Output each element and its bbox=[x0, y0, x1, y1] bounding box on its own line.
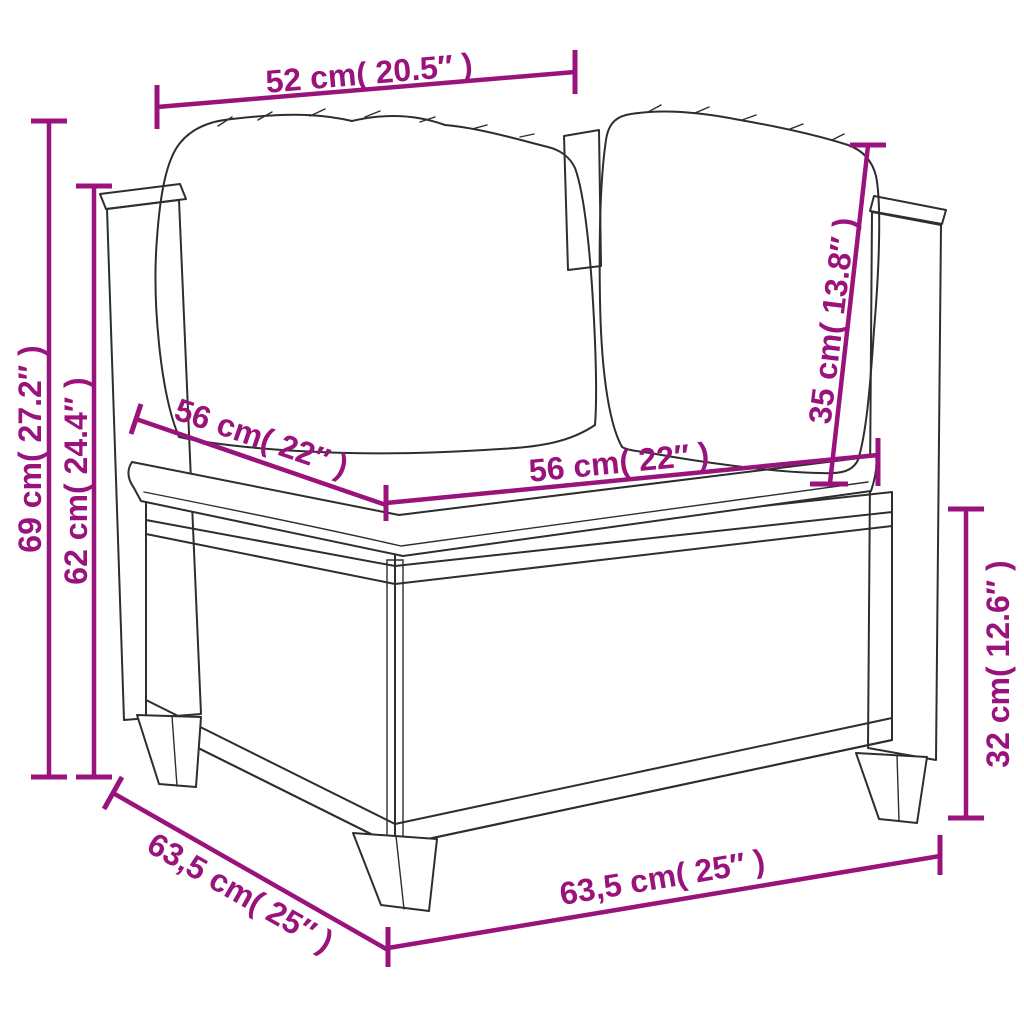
dim-base-width: 63,5 cm( 25″ ) bbox=[388, 835, 940, 967]
dimension-label: 62 cm( 24.4″ ) bbox=[58, 377, 94, 584]
dimension-label: 69 cm( 27.2″ ) bbox=[12, 345, 48, 552]
dimension-label: 56 cm( 22″ ) bbox=[170, 391, 353, 484]
dim-base-depth: 63,5 cm( 25″ ) bbox=[104, 777, 388, 959]
corner-leg bbox=[353, 833, 437, 911]
dim-base-height: 32 cm( 12.6″ ) bbox=[948, 509, 1016, 818]
base-front-left-face bbox=[146, 520, 395, 846]
right-leg bbox=[856, 753, 927, 823]
dim-arm-height: 62 cm( 24.4″ ) bbox=[58, 186, 112, 777]
front-left-leg bbox=[137, 715, 201, 787]
wicker-base bbox=[146, 492, 892, 846]
dimension-diagram: 52 cm( 20.5″ ) 69 cm( 27.2″ ) 62 cm( 24.… bbox=[0, 0, 1024, 1024]
dimension-label: 63,5 cm( 25″ ) bbox=[141, 825, 339, 959]
dimension-label: 35 cm( 13.8″ ) bbox=[802, 216, 863, 426]
dimension-label: 52 cm( 20.5″ ) bbox=[264, 46, 474, 100]
base-front-right-face bbox=[395, 512, 892, 846]
corner-sofa-illustration: 52 cm( 20.5″ ) 69 cm( 27.2″ ) 62 cm( 24.… bbox=[0, 0, 1024, 1024]
left-back-cushion bbox=[156, 109, 597, 453]
left-arm-panel bbox=[100, 184, 201, 720]
dimension-label: 32 cm( 12.6″ ) bbox=[980, 560, 1016, 767]
